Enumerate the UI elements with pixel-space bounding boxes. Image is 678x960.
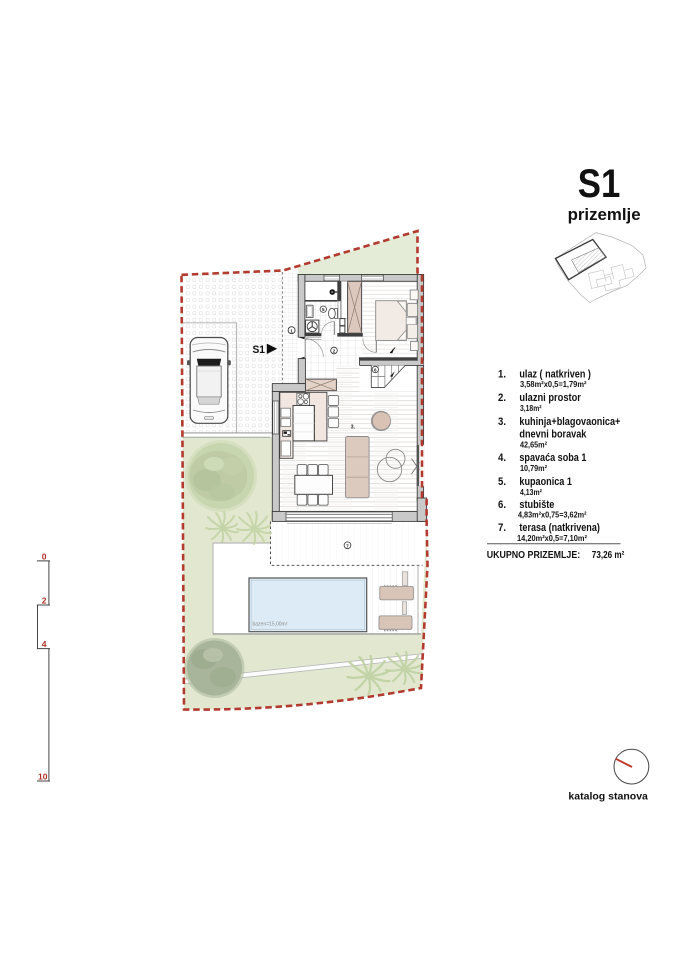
svg-text:7.: 7.: [498, 522, 506, 534]
svg-text:katalog stanova: katalog stanova: [568, 792, 648, 803]
svg-text:5.: 5.: [498, 476, 506, 488]
svg-text:2: 2: [42, 595, 47, 605]
svg-text:6: 6: [374, 368, 377, 373]
svg-text:14,20m²x0,5=7,10m²: 14,20m²x0,5=7,10m²: [517, 533, 587, 543]
svg-text:4: 4: [42, 639, 47, 649]
svg-text:0: 0: [42, 551, 47, 561]
svg-text:kuhinja+blagovaonica+: kuhinja+blagovaonica+: [519, 416, 620, 428]
svg-text:3,18m²: 3,18m²: [520, 403, 542, 413]
svg-text:3,58m²x0,5=1,79m²: 3,58m²x0,5=1,79m²: [520, 379, 587, 389]
svg-text:5: 5: [322, 307, 325, 312]
svg-text:1: 1: [290, 328, 293, 334]
svg-text:UKUPNO PRIZEMLJE:: UKUPNO PRIZEMLJE:: [487, 550, 581, 561]
svg-text:10: 10: [38, 771, 48, 781]
svg-text:42,65m²: 42,65m²: [520, 440, 547, 450]
svg-text:2.: 2.: [498, 392, 506, 404]
svg-text:bazen=15,00m²: bazen=15,00m²: [253, 622, 288, 628]
svg-text:7: 7: [346, 543, 349, 549]
svg-text:terasa (natkrivena): terasa (natkrivena): [519, 522, 600, 534]
svg-text:4,83m²x0,75=3,62m²: 4,83m²x0,75=3,62m²: [518, 510, 587, 520]
svg-text:3.: 3.: [351, 425, 356, 431]
svg-text:1.: 1.: [498, 368, 506, 380]
svg-text:6.: 6.: [498, 499, 506, 511]
svg-text:2: 2: [333, 349, 336, 355]
svg-text:10,79m²: 10,79m²: [520, 463, 547, 473]
svg-text:3.: 3.: [498, 416, 506, 428]
svg-text:4.: 4.: [498, 452, 506, 464]
svg-text:S1: S1: [253, 344, 266, 356]
svg-text:4,13m²: 4,13m²: [520, 487, 542, 497]
svg-text:S1: S1: [578, 162, 621, 206]
svg-text:prizemlje: prizemlje: [568, 206, 641, 224]
svg-text:73,26 m²: 73,26 m²: [592, 550, 625, 561]
